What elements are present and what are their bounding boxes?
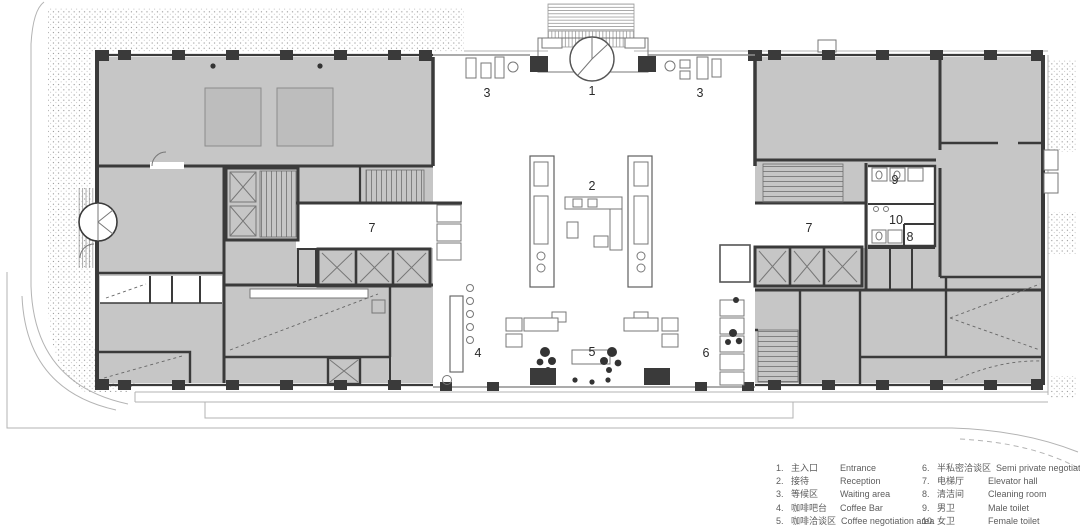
room-label-elevator-hall-left: 7	[369, 221, 376, 235]
legend-en: Waiting area	[840, 488, 890, 501]
reception-desk	[565, 197, 622, 250]
legend-en: Female toilet	[988, 515, 1040, 528]
room-label-waiting-right: 3	[697, 86, 704, 100]
legend-num: 7.	[922, 475, 937, 488]
stairs-icon	[763, 164, 843, 202]
room-label-coffee-negotiation: 5	[589, 345, 596, 359]
legend-zh: 接待	[791, 475, 835, 488]
legend-item: 5.咖啡洽谈区Coffee negotiation area	[776, 515, 922, 528]
room-label-cleaning: 8	[907, 230, 914, 244]
legend-item: 9.男卫Male toilet	[922, 502, 1080, 515]
legend-en: Entrance	[840, 462, 876, 475]
room-label-waiting-left: 3	[484, 86, 491, 100]
legend-item: 10.女卫Female toilet	[922, 515, 1080, 528]
legend-zh: 电梯厅	[937, 475, 983, 488]
legend-item: 6.半私密洽谈区Semi private negotiation area	[922, 462, 1080, 475]
legend-item: 4.咖啡吧台Coffee Bar	[776, 502, 922, 515]
legend-num: 2.	[776, 475, 791, 488]
legend-en: Male toilet	[988, 502, 1029, 515]
legend-num: 8.	[922, 488, 937, 501]
legend-zh: 主入口	[791, 462, 835, 475]
legend-column-right: 6.半私密洽谈区Semi private negotiation area 7.…	[922, 462, 1080, 528]
legend-en: Semi private negotiation area	[996, 462, 1080, 475]
legend-en: Cleaning room	[988, 488, 1047, 501]
legend-num: 4.	[776, 502, 791, 515]
legend-item: 2.接待Reception	[776, 475, 922, 488]
reception-area	[530, 156, 652, 287]
legend-en: Coffee negotiation area	[841, 515, 934, 528]
legend-num: 6.	[922, 462, 937, 475]
legend-item: 8.清洁间Cleaning room	[922, 488, 1080, 501]
legend-zh: 咖啡吧台	[791, 502, 835, 515]
legend-zh: 清洁间	[937, 488, 983, 501]
legend-zh: 等候区	[791, 488, 835, 501]
legend-zh: 半私密洽谈区	[937, 462, 991, 475]
legend-en: Elevator hall	[988, 475, 1038, 488]
legend-zh: 咖啡洽谈区	[791, 515, 836, 528]
legend-en: Reception	[840, 475, 881, 488]
left-wing	[79, 55, 462, 385]
legend-item: 1.主入口Entrance	[776, 462, 922, 475]
legend-zh: 女卫	[937, 515, 983, 528]
room-label-entrance: 1	[589, 84, 596, 98]
semi-private-booths	[720, 245, 750, 385]
legend-num: 1.	[776, 462, 791, 475]
room-label-female-toilet: 10	[889, 213, 903, 227]
waiting-area-left	[466, 57, 518, 78]
room-label-coffee-bar: 4	[475, 346, 482, 360]
service-cells-left	[437, 205, 461, 260]
room-label-elevator-hall-right: 7	[806, 221, 813, 235]
stairs-icon	[366, 170, 424, 202]
legend-num: 3.	[776, 488, 791, 501]
floor-plan-canvas: 1 2 3 3 4 5 6 7 7 8 9 10 1.主入口Entrance 2…	[0, 0, 1080, 532]
legend-num: 9.	[922, 502, 937, 515]
legend-column-left: 1.主入口Entrance 2.接待Reception 3.等候区Waiting…	[776, 462, 922, 528]
stairs-icon	[260, 171, 296, 237]
coffee-bar-counter	[443, 285, 474, 385]
legend-num: 5.	[776, 515, 791, 528]
floor-plan-drawing: 1 2 3 3 4 5 6 7 7 8 9 10	[0, 0, 1080, 532]
room-label-reception: 2	[589, 179, 596, 193]
legend-num: 10.	[922, 515, 937, 528]
legend-item: 3.等候区Waiting area	[776, 488, 922, 501]
room-label-male-toilet: 9	[892, 173, 899, 187]
stairs-icon	[758, 330, 798, 382]
room-label-semi-private: 6	[703, 346, 710, 360]
revolving-door-icon	[530, 37, 656, 81]
waiting-area-right	[665, 57, 721, 79]
legend-item: 7.电梯厅Elevator hall	[922, 475, 1080, 488]
right-wing	[755, 40, 1058, 385]
legend-zh: 男卫	[937, 502, 983, 515]
legend-en: Coffee Bar	[840, 502, 883, 515]
